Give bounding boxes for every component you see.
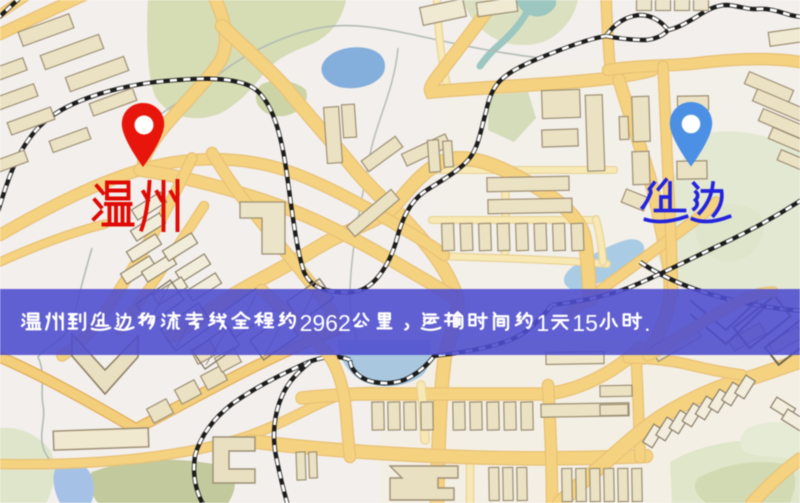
- svg-text:.: .: [644, 310, 650, 336]
- svg-text:2962: 2962: [300, 310, 351, 336]
- svg-text:1: 1: [536, 310, 549, 336]
- svg-text:15: 15: [572, 310, 598, 336]
